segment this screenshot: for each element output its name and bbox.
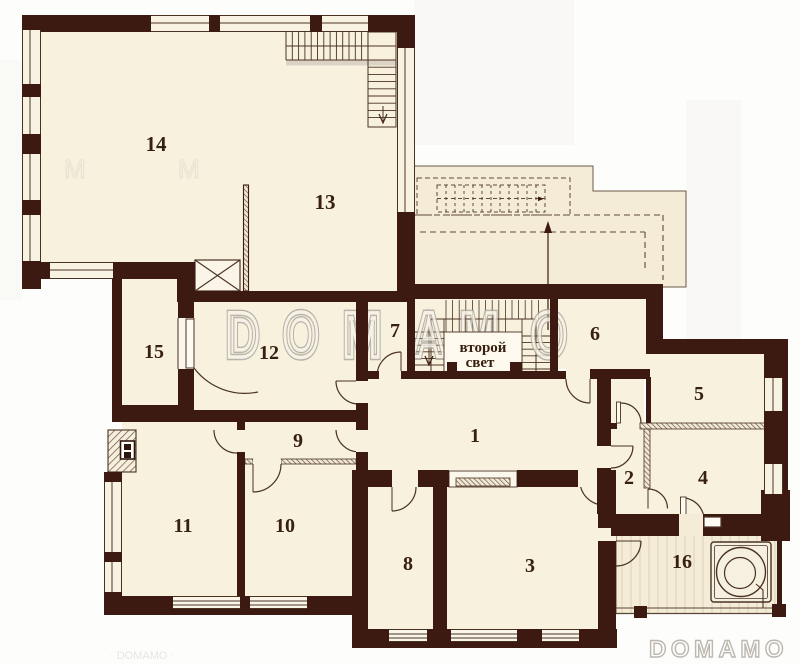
svg-text:13: 13 (315, 190, 336, 214)
svg-text:· DOMAMO ·: · DOMAMO · (110, 650, 174, 662)
svg-text:O: O (283, 300, 319, 371)
svg-text:O: O (531, 300, 567, 371)
svg-text:10: 10 (275, 515, 295, 537)
svg-text:3: 3 (525, 555, 535, 577)
svg-text:D: D (226, 300, 259, 371)
svg-text:DOMAMO: DOMAMO (649, 636, 788, 663)
svg-text:11: 11 (174, 515, 193, 537)
svg-text:5: 5 (694, 383, 704, 405)
svg-text:1: 1 (470, 425, 480, 447)
svg-text:8: 8 (403, 553, 413, 575)
svg-text:12: 12 (259, 342, 279, 364)
svg-text:9: 9 (293, 430, 303, 452)
svg-text:6: 6 (590, 323, 600, 345)
svg-text:2: 2 (624, 467, 634, 489)
svg-text:15: 15 (144, 341, 164, 363)
svg-text:свет: свет (466, 355, 495, 371)
svg-text:M: M (178, 154, 200, 184)
svg-text:4: 4 (698, 467, 708, 489)
svg-text:16: 16 (672, 551, 692, 573)
svg-text:7: 7 (390, 320, 400, 342)
svg-text:второй: второй (460, 340, 507, 356)
svg-text:A: A (412, 300, 445, 371)
svg-text:M: M (64, 154, 86, 184)
svg-text:14: 14 (146, 132, 168, 156)
